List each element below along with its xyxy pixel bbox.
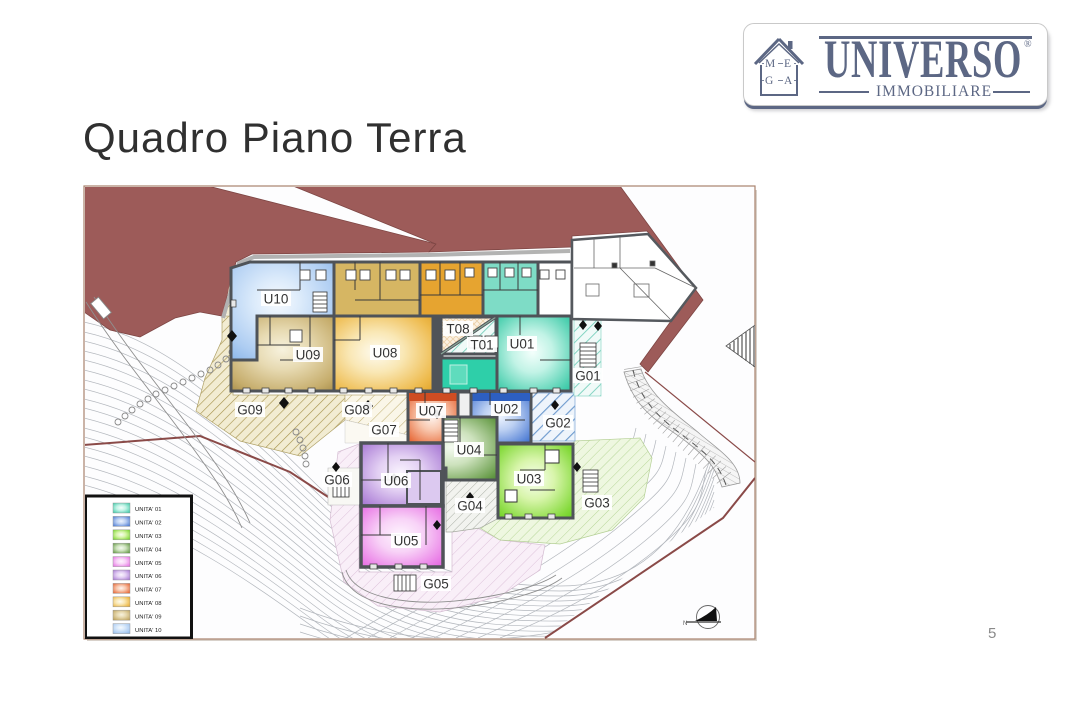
svg-text:G05: G05 [423,577,449,592]
svg-text:T01: T01 [470,338,493,353]
svg-text:N: N [683,621,687,627]
svg-text:U06: U06 [384,474,409,489]
svg-text:UNITA' 08: UNITA' 08 [135,601,162,607]
svg-text:U09: U09 [296,348,321,363]
svg-text:G09: G09 [237,403,263,418]
svg-text:U04: U04 [457,443,482,458]
svg-text:G03: G03 [584,496,610,511]
svg-text:U10: U10 [264,292,289,307]
svg-text:UNITA' 05: UNITA' 05 [135,561,162,567]
svg-text:U01: U01 [510,337,535,352]
svg-text:G04: G04 [457,499,483,514]
svg-text:T08: T08 [446,322,469,337]
svg-text:U05: U05 [394,534,419,549]
svg-text:UNITA' 03: UNITA' 03 [135,534,162,540]
svg-text:U02: U02 [494,402,519,417]
svg-text:G07: G07 [371,423,397,438]
svg-text:U03: U03 [517,472,542,487]
svg-text:UNITA' 01: UNITA' 01 [135,507,162,513]
svg-text:G08: G08 [344,403,370,418]
svg-text:UNITA' 10: UNITA' 10 [135,628,162,634]
svg-text:UNITA' 04: UNITA' 04 [135,547,162,553]
svg-text:U07: U07 [419,404,444,419]
svg-text:G06: G06 [324,473,350,488]
svg-text:UNITA' 07: UNITA' 07 [135,588,162,594]
svg-text:U08: U08 [373,346,398,361]
svg-text:UNITA' 09: UNITA' 09 [135,614,162,620]
svg-text:G01: G01 [575,369,601,384]
svg-text:G02: G02 [545,416,571,431]
svg-text:UNITA' 06: UNITA' 06 [135,574,162,580]
svg-text:UNITA' 02: UNITA' 02 [135,521,162,527]
